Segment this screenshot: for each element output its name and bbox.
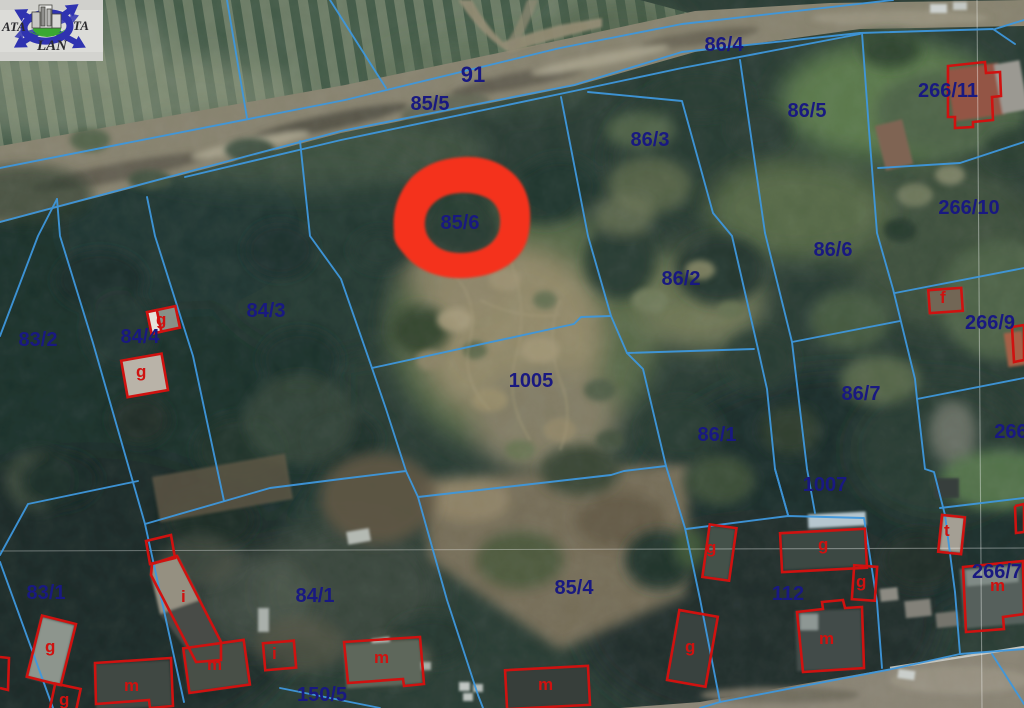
svg-text:TA: TA [73,18,89,33]
svg-text:g: g [136,362,146,381]
svg-text:84/1: 84/1 [296,585,335,607]
svg-text:86/5: 86/5 [788,100,827,122]
svg-text:t: t [944,521,950,540]
svg-text:1007: 1007 [803,474,848,496]
svg-text:85/5: 85/5 [411,93,450,115]
svg-text:i: i [272,644,277,663]
svg-text:85/6: 85/6 [441,212,480,234]
svg-text:m: m [374,648,389,667]
svg-text:150/5: 150/5 [297,684,347,706]
svg-text:83/1: 83/1 [27,582,66,604]
svg-text:86/4: 86/4 [705,34,745,56]
svg-text:266/10: 266/10 [938,197,999,219]
svg-text:84/4: 84/4 [121,326,161,348]
svg-text:g: g [45,637,55,656]
svg-text:86/6: 86/6 [814,239,853,261]
svg-text:86/7: 86/7 [842,383,881,405]
svg-text:g: g [59,690,69,708]
svg-text:86/3: 86/3 [631,129,670,151]
svg-text:83/2: 83/2 [19,329,58,351]
svg-text:m: m [124,676,139,695]
svg-text:ATA: ATA [1,19,26,34]
svg-text:g: g [856,572,866,591]
svg-text:112: 112 [772,583,804,605]
svg-text:i: i [181,587,186,606]
svg-text:m: m [819,629,834,648]
svg-text:g: g [706,538,716,557]
svg-text:84/3: 84/3 [247,300,286,322]
svg-text:f: f [940,288,946,307]
svg-text:g: g [685,637,695,656]
svg-text:m: m [538,675,553,694]
svg-text:266/11: 266/11 [918,80,978,102]
svg-text:86/1: 86/1 [698,424,737,446]
svg-text:266/9: 266/9 [965,312,1015,334]
svg-text:g: g [818,535,828,554]
svg-text:266/7: 266/7 [972,561,1022,583]
svg-text:85/4: 85/4 [555,577,595,599]
svg-text:91: 91 [461,62,485,87]
svg-text:266: 266 [994,421,1024,443]
svg-text:LAN: LAN [36,38,68,54]
svg-text:86/2: 86/2 [662,268,701,290]
svg-text:m: m [207,655,222,674]
svg-text:1005: 1005 [509,370,554,392]
